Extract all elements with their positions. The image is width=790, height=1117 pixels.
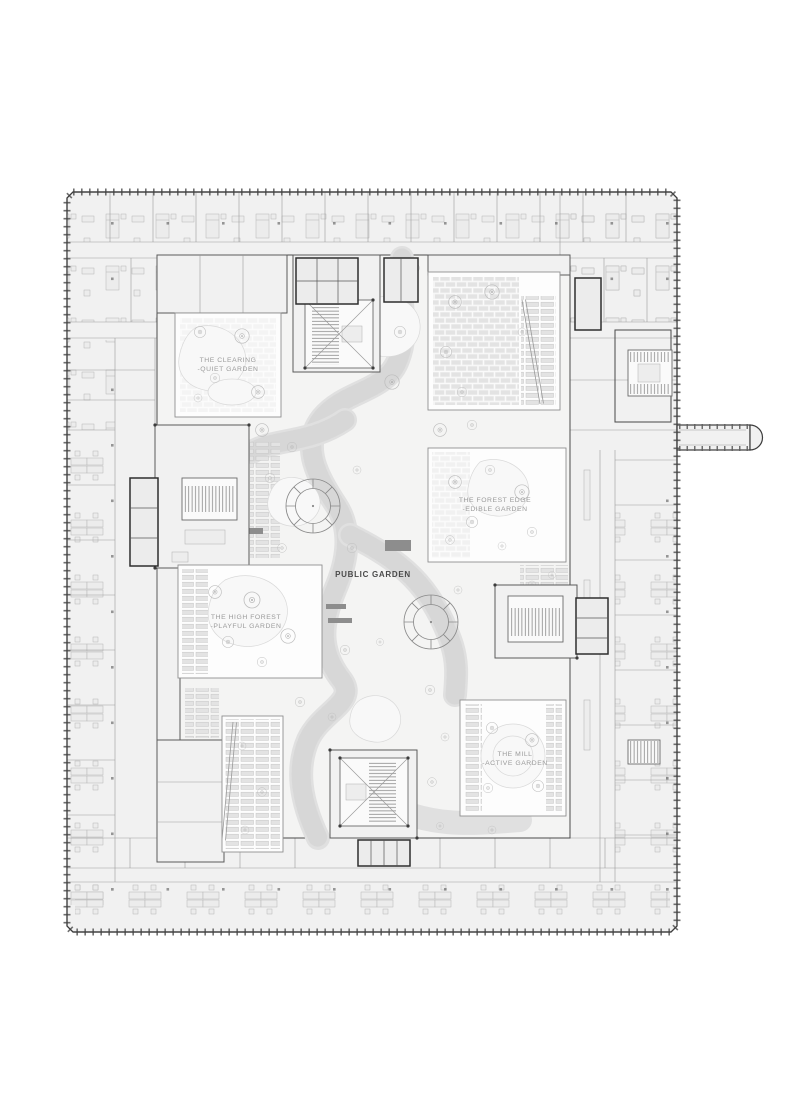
courtyard-paved-north bbox=[428, 272, 560, 410]
circular-plaza-north bbox=[286, 479, 340, 533]
corridor-east bbox=[570, 450, 615, 880]
stair-feature-north bbox=[303, 298, 374, 369]
label-playful-garden-1: THE HIGH FOREST bbox=[211, 614, 281, 621]
stair-west bbox=[182, 478, 237, 520]
label-edible-garden-2: -EDIBLE GARDEN bbox=[462, 506, 527, 513]
floor-plan: THE CLEARING -QUIET GARDEN THE FOREST ED… bbox=[0, 0, 790, 1117]
bridge-walkway bbox=[677, 425, 763, 450]
drawing-sheet: THE CLEARING -QUIET GARDEN THE FOREST ED… bbox=[0, 0, 790, 1117]
corridor-south bbox=[67, 868, 677, 882]
courtyard-paved-southwest bbox=[222, 716, 283, 852]
courtyard-active-garden: THE MILL -ACTIVE GARDEN bbox=[460, 700, 566, 816]
courtyard-edible-garden: THE FOREST EDGE -EDIBLE GARDEN bbox=[428, 448, 566, 562]
terrace-planting bbox=[185, 688, 219, 738]
stair-east bbox=[508, 596, 563, 642]
courtyard-quiet-garden: THE CLEARING -QUIET GARDEN bbox=[175, 313, 281, 417]
label-edible-garden-1: THE FOREST EDGE bbox=[459, 497, 531, 504]
stair-southeast bbox=[628, 740, 660, 764]
courtyard-playful-garden: THE HIGH FOREST -PLAYFUL GARDEN bbox=[178, 565, 322, 678]
label-quiet-garden-2: -QUIET GARDEN bbox=[197, 366, 258, 373]
stair-feature-south bbox=[338, 756, 409, 827]
label-quiet-garden-1: THE CLEARING bbox=[200, 357, 257, 364]
label-active-garden-1: THE MILL bbox=[498, 751, 533, 758]
circular-plaza-south bbox=[404, 595, 458, 649]
label-playful-garden-2: -PLAYFUL GARDEN bbox=[211, 623, 282, 630]
lawn-blob bbox=[350, 696, 401, 743]
corridor-west bbox=[115, 338, 155, 882]
label-active-garden-2: -ACTIVE GARDEN bbox=[482, 760, 547, 767]
label-public-garden: PUBLIC GARDEN bbox=[335, 570, 411, 579]
